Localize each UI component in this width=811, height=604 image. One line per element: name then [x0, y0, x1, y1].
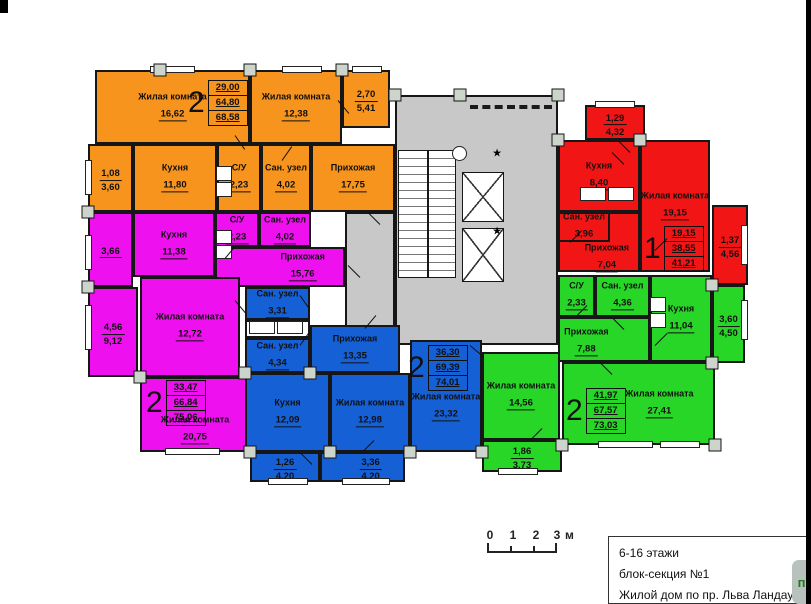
room-area: 11,80: [161, 180, 188, 193]
wall-column: [552, 89, 565, 102]
apartment-area-row: 36,30: [429, 346, 467, 360]
fixture-box: [216, 182, 232, 197]
apartment-summary: 229,0064,8068,58: [188, 80, 248, 126]
apartment-area-row: 41,21: [665, 256, 703, 271]
room-area: 14,56: [507, 398, 535, 411]
apartment-area-row: 19,15: [665, 227, 703, 241]
title-floors: 6-16 этажи: [619, 543, 810, 564]
window-segment: [85, 160, 92, 195]
scale-ruler: [487, 543, 557, 553]
apartment-areas-box: 33,4766,8475,06: [166, 380, 206, 426]
apartment-area-row: 29,00: [209, 81, 247, 95]
wall-column: [244, 446, 257, 459]
room-gr-liv1: Жилая комната14,56: [482, 352, 560, 440]
title-section: блок-секция №1: [619, 564, 810, 585]
apartment-number: 2: [566, 396, 583, 426]
room-name: Кухня: [274, 397, 302, 408]
room-area: 3,66: [99, 246, 122, 259]
wall-column: [634, 134, 647, 147]
room-name: Жилая комната: [487, 380, 555, 391]
room-area: 7,04: [596, 259, 619, 272]
room-or-hall: Прихожая17,75: [311, 144, 395, 212]
room-area: 4,56: [102, 322, 125, 335]
room-area: 16,62: [159, 109, 187, 122]
room-area: 3,36: [359, 457, 382, 470]
wall-column: [706, 357, 719, 370]
room-name: Кухня: [161, 162, 188, 173]
apartment-areas-box: 29,0064,8068,58: [208, 80, 248, 126]
apartment-summary: 233,4766,8475,06: [146, 380, 206, 426]
wall-column: [552, 134, 565, 147]
apartment-areas-box: 36,3069,3974,01: [428, 345, 468, 391]
room-name: Прихожая: [331, 162, 375, 173]
window-segment: [741, 225, 748, 265]
fixture-box: [216, 166, 232, 181]
floorplan-screenshot: Жилая комната16,62Жилая комната12,382,70…: [0, 0, 811, 604]
room-bl-san1: Сан. узел3,31: [245, 287, 310, 320]
room-rd-san: Сан. узел3,96: [558, 212, 610, 242]
room-or-balc1: 2,705,41: [342, 70, 390, 128]
room-name: Сан. узел: [256, 288, 298, 299]
room-area: 12,72: [176, 329, 204, 342]
room-label: Прихожая7,04: [585, 242, 629, 273]
room-name: Жилая комната: [625, 388, 693, 399]
room-name: Сан. узел: [265, 162, 307, 173]
wall-column: [304, 367, 317, 380]
fixture-box: [608, 187, 634, 201]
room-label: 4,569,12: [102, 316, 125, 348]
room-area: 2,70: [355, 89, 378, 102]
room-label: Сан. узел4,02: [265, 162, 307, 193]
room-area: 27,41: [645, 405, 673, 418]
wall-column: [134, 371, 147, 384]
apartment-areas-box: 41,9767,5773,03: [586, 388, 626, 434]
scale-unit-label: м: [565, 528, 574, 542]
room-label: Кухня11,04: [667, 303, 694, 334]
room-label: Сан. узел4,34: [256, 340, 298, 371]
wall-column: [706, 279, 719, 292]
room-label: Жилая комната12,38: [262, 91, 330, 122]
apartment-summary: 119,1538,5541,21: [644, 226, 704, 272]
window-segment: [595, 101, 635, 108]
room-area: 12,98: [356, 414, 384, 427]
room-area-total: 4,32: [604, 127, 627, 139]
apartment-number: 2: [188, 88, 205, 118]
room-area: 4,02: [274, 231, 297, 244]
room-label: Сан. узел3,31: [256, 288, 298, 319]
apartment-area-row: 64,80: [209, 95, 247, 110]
apartment-area-row: 73,03: [587, 418, 625, 433]
star-mark-icon: ★: [492, 147, 502, 160]
room-name: Жилая комната: [641, 190, 709, 201]
room-area: 13,35: [341, 351, 369, 364]
wall-column: [244, 64, 257, 77]
apartment-area-row: 74,01: [429, 375, 467, 390]
room-bl-hall: Прихожая13,35: [310, 325, 400, 373]
apartment-areas-box: 19,1538,5541,21: [664, 226, 704, 272]
room-area-total: 3,60: [99, 182, 122, 194]
title-block: 6-16 этажи блок-секция №1 Жилой дом по п…: [608, 536, 811, 604]
room-name: Сан. узел: [601, 280, 643, 291]
room-name: Кухня: [667, 303, 694, 314]
apartment-area-row: 68,58: [209, 110, 247, 125]
room-area: 23,32: [432, 408, 460, 421]
room-area: 1,86: [511, 446, 534, 459]
window-segment: [741, 300, 748, 340]
apartment-area-row: 33,47: [167, 381, 205, 395]
fixture-box: [249, 321, 275, 334]
room-name: Кухня: [586, 160, 612, 171]
room-label: Жилая комната14,56: [487, 380, 555, 411]
screen-edge-strip: [806, 0, 811, 604]
room-label: Кухня11,80: [161, 162, 188, 193]
apartment-summary: 236,3069,3974,01: [408, 345, 468, 391]
room-area: 3,60: [717, 314, 740, 327]
apartment-summary: 241,9767,5773,03: [566, 388, 626, 434]
room-area: 1,29: [604, 113, 627, 126]
room-area: 1,26: [274, 457, 297, 470]
room-or-liv2: Жилая комната12,38: [250, 70, 342, 144]
wall-column: [239, 367, 252, 380]
room-gr-hall: Прихожая7,88: [558, 317, 650, 362]
window-segment: [85, 235, 92, 270]
room-area: 15,76: [289, 269, 317, 282]
wall-column: [389, 89, 402, 102]
room-name: Прихожая: [564, 326, 608, 337]
room-area-total: 4,50: [717, 328, 740, 340]
window-segment: [268, 478, 308, 485]
room-label: Жилая комната12,98: [336, 397, 404, 428]
scale-bar: 0 1 2 3 м: [485, 528, 585, 558]
room-label: Кухня12,09: [274, 397, 302, 428]
apartment-area-row: 69,39: [429, 360, 467, 375]
room-name: Жилая комната: [412, 391, 480, 402]
room-name: Сан. узел: [563, 211, 605, 222]
room-area: 17,75: [339, 180, 367, 193]
scale-tick-label: 0: [487, 528, 494, 542]
room-name: Прихожая: [333, 333, 377, 344]
room-gr-san: Сан. узел4,36: [595, 275, 650, 317]
room-label: Прихожая17,75: [331, 162, 375, 193]
popup-label: п: [798, 575, 806, 590]
room-area: 20,75: [181, 432, 209, 445]
room-area: 11,04: [667, 320, 694, 333]
room-mg-kitchen: Кухня11,38: [133, 212, 215, 277]
elevator-shaft: [462, 172, 504, 222]
room-area: 4,36: [611, 298, 634, 311]
room-area: 12,38: [282, 109, 310, 122]
room-or-balc2: 1,083,60: [88, 144, 133, 212]
apartment-area-row: 38,55: [665, 241, 703, 256]
room-name: С/У: [565, 280, 588, 291]
wall-column: [154, 64, 167, 77]
room-or-kitchen: Кухня11,80: [133, 144, 217, 212]
apartment-area-row: 75,06: [167, 410, 205, 425]
room-area: 7,88: [575, 343, 598, 356]
corner-mark: [0, 0, 8, 13]
apartment-number: 1: [644, 234, 661, 264]
wall-column: [556, 439, 569, 452]
room-label: Жилая комната23,32: [412, 391, 480, 422]
window-segment: [498, 468, 538, 475]
wall-column: [709, 439, 722, 452]
room-label: Сан. узел3,96: [563, 211, 605, 242]
scale-tick-label: 3: [554, 528, 561, 542]
staircase: [398, 150, 456, 278]
room-gr-su: С/У2,33: [558, 275, 595, 317]
room-name: С/У: [226, 214, 249, 225]
window-segment: [342, 478, 390, 485]
room-label: 1,083,60: [99, 162, 122, 194]
wall-column: [82, 281, 95, 294]
title-address: Жилой дом по пр. Льва Ландау, 18б: [619, 585, 810, 604]
room-name: Прихожая: [585, 242, 629, 253]
room-area-total: 4,56: [719, 249, 742, 261]
corridor-dashed-barrier: [470, 105, 552, 109]
room-area: 11,38: [160, 246, 187, 259]
window-segment: [282, 66, 322, 73]
room-name: Жилая комната: [262, 91, 330, 102]
fixture-box: [650, 297, 666, 312]
wall-column: [454, 89, 467, 102]
room-label: Сан. узел4,02: [264, 214, 306, 245]
room-area-total: 9,12: [102, 336, 125, 348]
room-label: Прихожая7,88: [564, 326, 608, 357]
wall-column: [82, 206, 95, 219]
scale-tick-label: 2: [533, 528, 540, 542]
room-label: Прихожая15,76: [280, 251, 324, 282]
apartment-area-row: 66,84: [167, 395, 205, 410]
room-area: 1,08: [99, 168, 122, 181]
room-label: 1,374,56: [719, 229, 742, 261]
wall-column: [476, 446, 489, 459]
garbage-chute-circle: [452, 146, 467, 161]
room-area-total: 5,41: [355, 103, 378, 115]
room-label: Жилая комната27,41: [625, 388, 693, 419]
room-area: 19,15: [661, 208, 689, 221]
room-mg-balc2: 4,569,12: [88, 287, 138, 377]
star-mark-icon: ★: [492, 225, 502, 238]
apartment-area-row: 67,57: [587, 403, 625, 418]
window-segment: [165, 448, 220, 455]
room-bl-kitchen: Кухня12,09: [245, 373, 330, 452]
room-area: 12,09: [274, 414, 302, 427]
fixture-box: [650, 313, 666, 328]
window-segment: [598, 441, 653, 448]
fixture-box: [216, 230, 232, 244]
apartment-number: 2: [408, 353, 425, 383]
room-mg-balc1: 3,66: [88, 212, 133, 287]
room-name: Жилая комната: [336, 397, 404, 408]
fixture-box: [277, 321, 303, 334]
apartment-number: 2: [146, 388, 163, 418]
room-label: 3,66: [99, 240, 122, 260]
apartment-area-row: 41,97: [587, 389, 625, 403]
room-label: Кухня11,38: [160, 229, 187, 260]
room-name: Сан. узел: [264, 214, 306, 225]
room-label: Прихожая13,35: [333, 333, 377, 364]
window-segment: [660, 441, 700, 448]
room-mg-liv1: Жилая комната12,72: [140, 277, 240, 377]
room-area: 4,34: [266, 357, 289, 370]
scale-tick-label: 1: [510, 528, 517, 542]
room-area: 4,02: [275, 180, 298, 193]
room-area: 3,31: [266, 305, 289, 318]
room-label: 3,604,50: [717, 308, 740, 340]
room-name: Кухня: [160, 229, 187, 240]
room-label: Жилая комната19,15: [641, 190, 709, 221]
wall-column: [336, 64, 349, 77]
room-label: Жилая комната12,72: [156, 311, 224, 342]
room-name: Прихожая: [280, 251, 324, 262]
room-label: Сан. узел4,36: [601, 280, 643, 311]
window-segment: [352, 66, 382, 73]
room-label: 2,705,41: [355, 83, 378, 115]
fixture-box: [580, 187, 606, 201]
room-name: Сан. узел: [256, 340, 298, 351]
wall-column: [404, 446, 417, 459]
wall-column: [324, 446, 337, 459]
window-segment: [85, 305, 92, 350]
room-label: 1,294,32: [604, 107, 627, 139]
room-bl-liv1: Жилая комната12,98: [330, 373, 410, 452]
room-mg-san: Сан. узел4,02: [259, 212, 311, 247]
room-area: 1,37: [719, 235, 742, 248]
room-name: Жилая комната: [156, 311, 224, 322]
